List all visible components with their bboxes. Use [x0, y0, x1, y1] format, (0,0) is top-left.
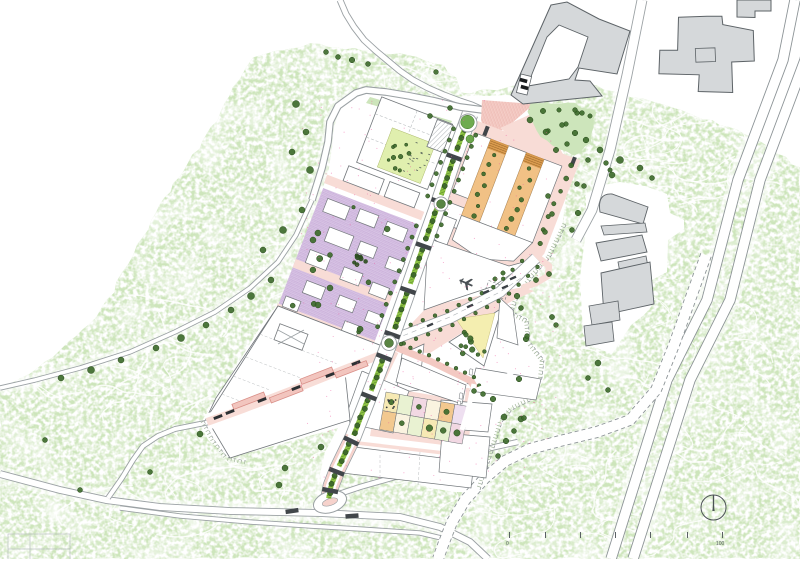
svg-text:100: 100: [716, 541, 725, 547]
svg-text:0: 0: [506, 541, 509, 547]
